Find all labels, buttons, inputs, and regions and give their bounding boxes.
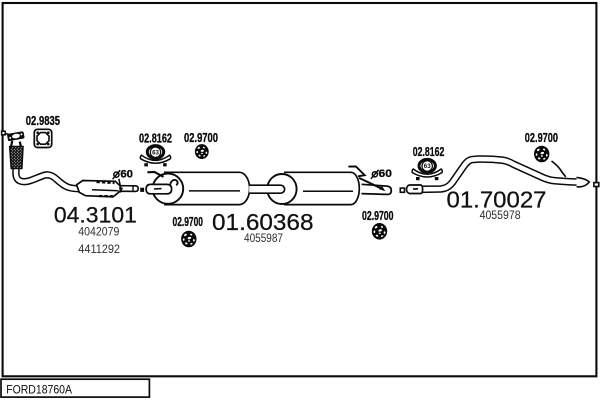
svg-text:4055978: 4055978 xyxy=(480,208,521,222)
svg-text:4042079: 4042079 xyxy=(78,224,119,238)
svg-text:02.9700: 02.9700 xyxy=(525,131,558,145)
svg-text:02.8162: 02.8162 xyxy=(139,131,172,145)
svg-text:FORD18760A: FORD18760A xyxy=(6,383,72,397)
svg-text:02.9700: 02.9700 xyxy=(173,215,204,229)
svg-text:4055987: 4055987 xyxy=(244,233,283,245)
svg-text:02.8162: 02.8162 xyxy=(413,145,445,159)
svg-text:60: 60 xyxy=(120,169,133,181)
svg-text:02.9835: 02.9835 xyxy=(26,114,60,128)
svg-text:01.60368: 01.60368 xyxy=(212,209,314,235)
svg-text:02.9700: 02.9700 xyxy=(184,131,218,145)
svg-text:02.9700: 02.9700 xyxy=(362,209,394,223)
svg-text:60: 60 xyxy=(379,168,392,180)
svg-text:4411292: 4411292 xyxy=(78,242,120,256)
